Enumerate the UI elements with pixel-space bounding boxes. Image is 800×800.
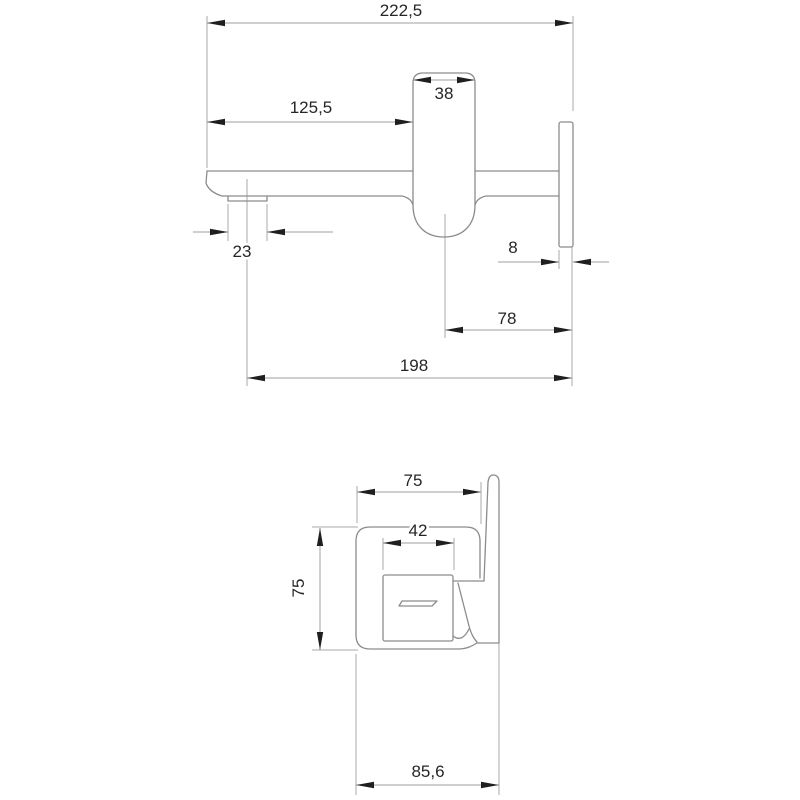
dim-label-total-depth: 85,6 [411, 762, 444, 781]
dim-label-body-height: 75 [289, 579, 308, 598]
technical-drawing: 222,5 125,5 38 23 8 78 198 [0, 0, 800, 800]
arrowhead [413, 77, 431, 83]
arrowhead [207, 119, 225, 125]
arrowhead [436, 540, 454, 546]
dim-label-handle-width: 42 [409, 521, 428, 540]
wall-plate-side [559, 122, 573, 247]
arrowhead [555, 20, 573, 26]
spout-underside-right [475, 196, 559, 205]
arrowhead [356, 782, 374, 788]
arrowhead [317, 632, 323, 650]
dim-label-total-reach: 222,5 [380, 1, 423, 20]
arrowhead [247, 375, 265, 381]
handle-slot [399, 601, 437, 606]
side-view: 222,5 125,5 38 23 8 78 198 [193, 1, 609, 386]
dim-label-aerator-width: 23 [233, 242, 252, 261]
arrowhead [267, 229, 285, 235]
arrowhead [573, 259, 591, 265]
handle-face [383, 575, 453, 641]
spout-tip-and-underside [206, 171, 413, 205]
plan-view-extension-lines [312, 482, 499, 795]
arrowhead [463, 489, 481, 495]
plan-view-labels: 75 42 75 85,6 [289, 471, 445, 781]
arrowhead [210, 229, 228, 235]
arrowhead [317, 528, 323, 546]
dim-label-outlet-to-wall: 198 [400, 356, 428, 375]
faucet-outline [206, 73, 573, 247]
control-unit-outline [356, 475, 499, 649]
arrowhead [357, 489, 375, 495]
dim-label-body-depth: 75 [404, 471, 423, 490]
dim-label-body-center-to-wall: 78 [498, 309, 517, 328]
arrowhead [481, 782, 499, 788]
lever-curve [453, 629, 469, 638]
arrowhead [457, 77, 475, 83]
dim-label-body-width: 38 [435, 84, 454, 103]
control-body [356, 527, 480, 649]
arrowhead [541, 259, 559, 265]
dim-label-plate-thickness: 8 [508, 238, 517, 257]
arrowhead [207, 20, 225, 26]
arrowhead [554, 327, 572, 333]
plan-view: 75 42 75 85,6 [289, 471, 499, 795]
arrowhead [395, 119, 413, 125]
technical-drawing-page: 222,5 125,5 38 23 8 78 198 [0, 0, 800, 800]
arrowhead [445, 327, 463, 333]
dim-label-spout-to-body: 125,5 [290, 98, 333, 117]
lever-edge [458, 583, 477, 642]
arrowhead [554, 375, 572, 381]
arrowhead [383, 540, 401, 546]
